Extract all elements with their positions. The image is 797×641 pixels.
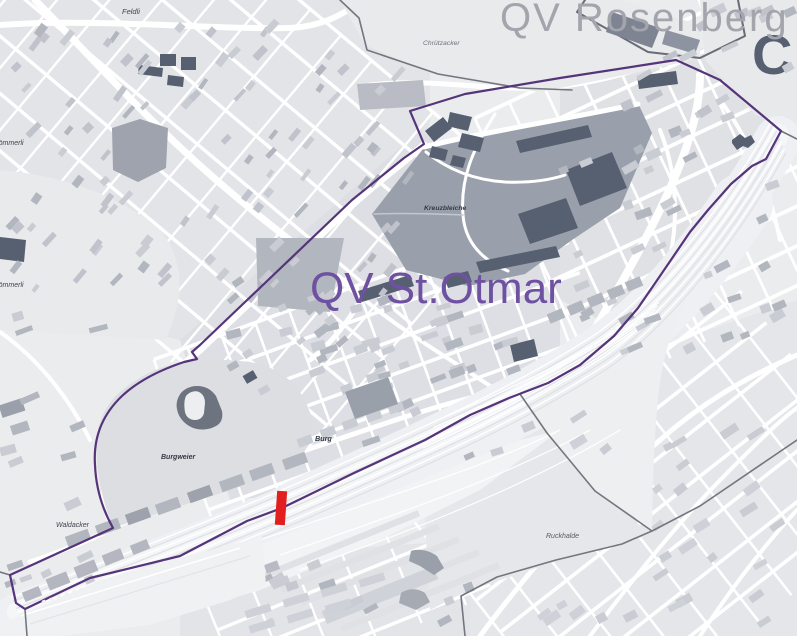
svg-text:Waldacker: Waldacker (56, 522, 90, 529)
svg-text:Kreuzbleiche: Kreuzbleiche (424, 205, 467, 212)
svg-text:QV St.Otmar: QV St.Otmar (310, 264, 562, 313)
svg-text:Sömmerli: Sömmerli (0, 282, 24, 289)
svg-text:Sömmerli: Sömmerli (0, 140, 24, 147)
svg-text:Ruckhalde: Ruckhalde (546, 533, 579, 540)
svg-text:QV Rosenberg: QV Rosenberg (500, 0, 789, 40)
svg-text:Feldli: Feldli (122, 7, 140, 16)
svg-text:Chrützacker: Chrützacker (423, 40, 460, 47)
svg-text:Burg: Burg (315, 434, 332, 443)
svg-text:Burgweier: Burgweier (161, 454, 197, 461)
